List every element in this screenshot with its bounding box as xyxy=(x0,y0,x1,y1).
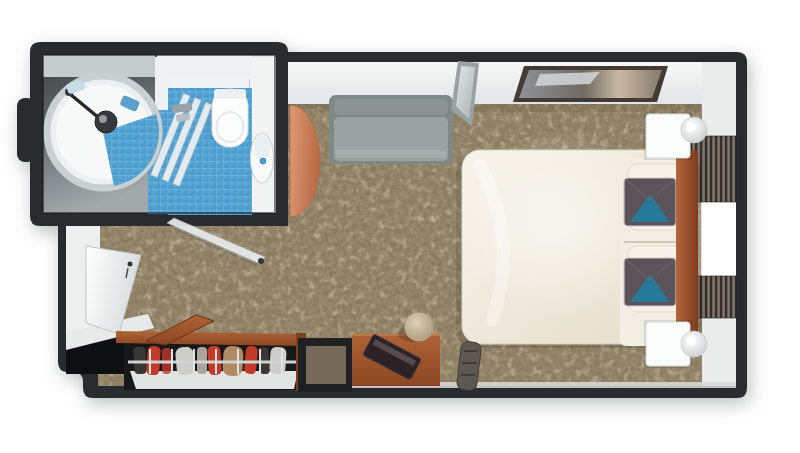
cubby-interior xyxy=(306,346,346,384)
sofa xyxy=(329,95,453,164)
double-bed xyxy=(450,130,702,348)
sink-basin-shade xyxy=(254,135,270,161)
floorplan-svg xyxy=(0,0,800,453)
door-handle xyxy=(128,262,133,267)
lamp-highlight-2 xyxy=(686,336,696,346)
toilet-lid-hinge xyxy=(214,89,246,99)
door-edge-cap xyxy=(258,258,264,264)
minibar-cubby xyxy=(298,338,352,392)
wall-artwork xyxy=(513,66,668,102)
bathroom xyxy=(43,55,276,215)
fixture-highlight xyxy=(99,115,107,123)
sofa-back-cushion xyxy=(334,99,448,115)
sink-drain xyxy=(260,158,266,164)
shower-drain-fixture xyxy=(95,111,117,133)
floorplan-image xyxy=(0,0,800,453)
headboard xyxy=(676,150,698,346)
lamp-highlight xyxy=(686,122,696,132)
stool xyxy=(405,313,434,342)
accent-pillow-2 xyxy=(624,258,676,306)
sofa-front-edge xyxy=(336,150,446,158)
wall-bump xyxy=(17,98,35,162)
accent-pillow-1 xyxy=(624,178,676,226)
